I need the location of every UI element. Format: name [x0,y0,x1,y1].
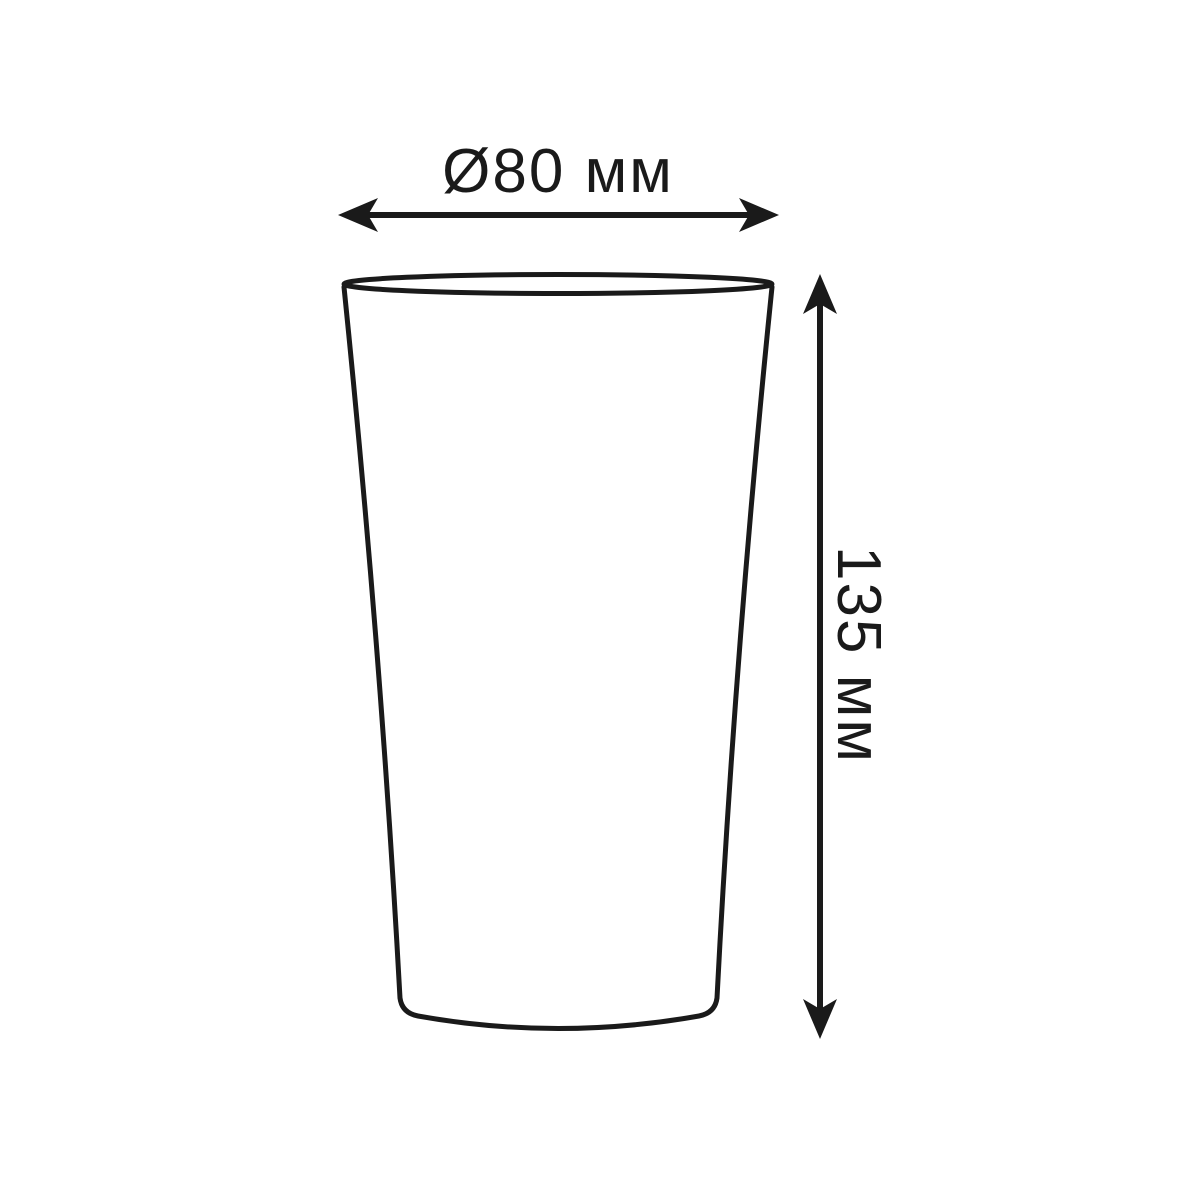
width-dimension-label: Ø80 мм [442,138,674,206]
cup-body-outline [344,287,772,1029]
technical-drawing-canvas: Ø80 мм 135 мм [0,0,1200,1200]
cup-rim-ellipse [344,275,772,294]
height-dimension-label: 135 мм [824,546,892,764]
